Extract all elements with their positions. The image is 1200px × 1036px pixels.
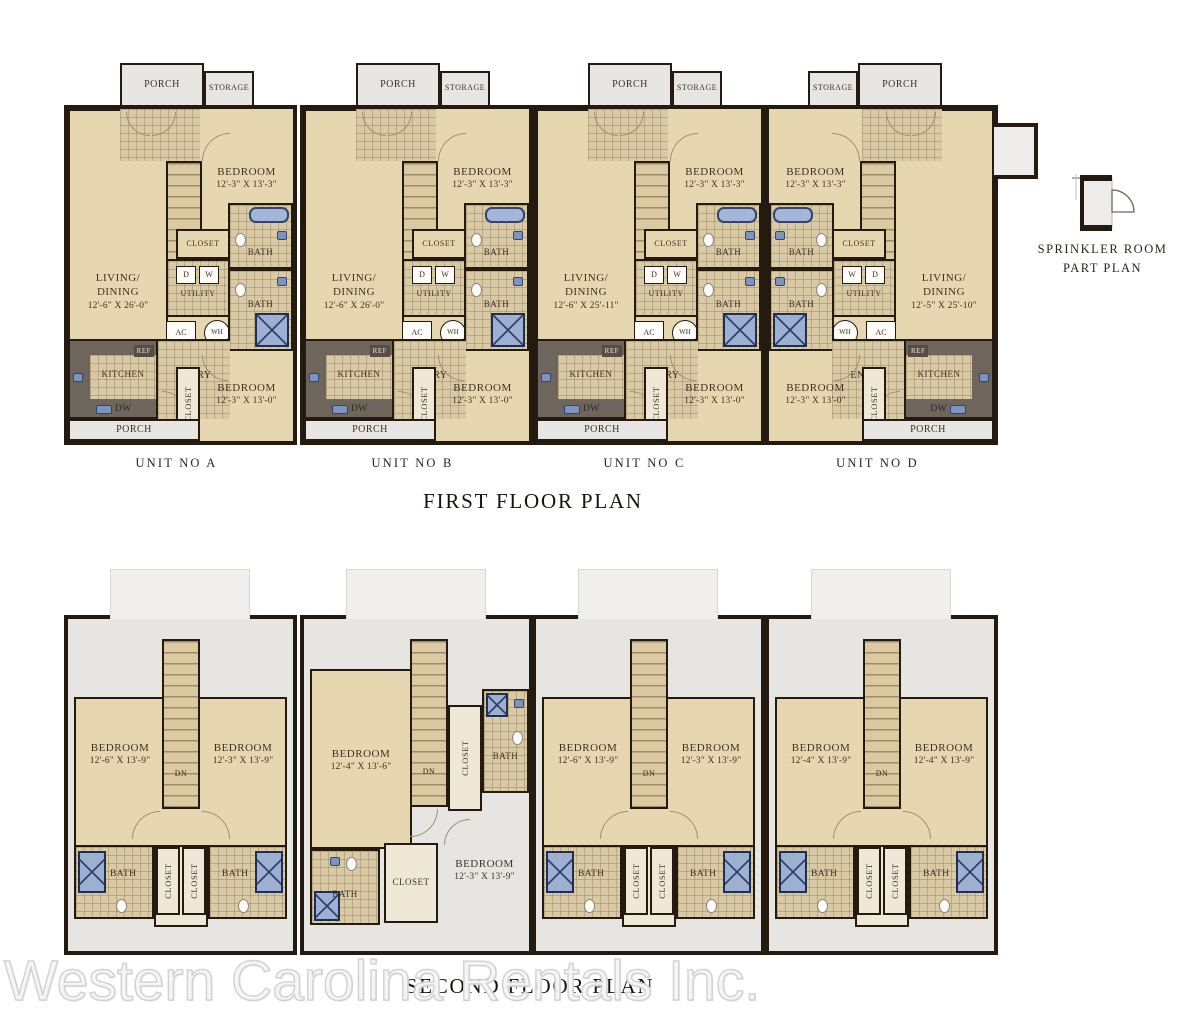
sink	[277, 277, 287, 286]
closet-left: CLOSET	[857, 847, 881, 915]
bathroom-1: BATH	[696, 203, 761, 269]
bedroom-label: BEDROOM	[436, 381, 529, 395]
dn-label: DN	[412, 767, 446, 777]
dryer-label: D	[872, 270, 878, 279]
roof-dormer	[346, 569, 486, 619]
bath-label: BATH	[923, 869, 949, 879]
closet-label: CLOSET	[183, 386, 193, 422]
stairs-down: DN	[410, 639, 448, 807]
porch-rear: PORCH	[68, 419, 200, 441]
sprinkler-room-icon	[1068, 170, 1140, 242]
bath-left: BATH	[775, 845, 855, 919]
sink	[745, 231, 755, 240]
washer-label: W	[848, 270, 856, 279]
door-arc	[410, 809, 438, 837]
bedroom-label: BEDROOM	[777, 741, 865, 755]
bedroom-label: BEDROOM	[440, 857, 529, 871]
toilet	[939, 899, 950, 913]
bedroom-dims: 12'-3" X 13'-3"	[436, 179, 529, 191]
living-dims: 12'-5" X 25'-10"	[896, 300, 992, 312]
washer-label: W	[441, 270, 449, 279]
first-floor-unit-c: PORCH STORAGE LIVING/DINING12'-6" X 25'-…	[532, 105, 765, 445]
roof-dormer	[578, 569, 718, 619]
shower	[723, 313, 757, 347]
dw-label: DW	[930, 404, 947, 414]
utility-room: W D UTILITY	[832, 259, 896, 317]
bathroom-1: BATH	[769, 203, 834, 269]
bedroom-label: BEDROOM	[200, 165, 293, 179]
bath-label: BATH	[771, 299, 832, 311]
wh-label: WH	[211, 328, 223, 336]
bath-label: BATH	[466, 247, 527, 259]
ac-label: AC	[411, 328, 422, 337]
washer-label: W	[205, 270, 213, 279]
porch-label: PORCH	[864, 423, 992, 436]
bathtub	[485, 207, 525, 223]
bath-left: BATH	[542, 845, 622, 919]
bath-label: BATH	[690, 869, 716, 879]
bedroom-dims: 12'-4" X 13'-9"	[899, 755, 989, 767]
closet-label: CLOSET	[869, 386, 879, 422]
living-label: LIVING/	[306, 271, 402, 285]
shower	[773, 313, 807, 347]
bedroom-label: BEDROOM	[899, 741, 989, 755]
living-label: LIVING/	[896, 271, 992, 285]
bedroom-label: BEDROOM	[769, 165, 862, 179]
shower	[779, 851, 807, 893]
bathroom-2: BATH	[464, 269, 529, 351]
stairs-down: DN	[630, 639, 668, 809]
toilet	[346, 857, 357, 871]
bath-label: BATH	[466, 299, 527, 311]
bathroom-1: BATH	[464, 203, 529, 269]
second-floor-unit-b: BEDROOM12'-4" X 13'-6" DN CLOSET BATH BA…	[300, 615, 533, 955]
kitchen-floor: KITCHEN	[906, 355, 972, 399]
unit-c-label: UNIT NO C	[532, 456, 757, 471]
floor-plan-sheet: PORCH STORAGE LIVING/DINING12'-6" X 26'-…	[0, 0, 1200, 1036]
refrigerator: REF	[908, 345, 928, 357]
dryer-box: D	[176, 266, 196, 284]
refrigerator: REF	[602, 345, 622, 357]
bath-right: BATH	[208, 845, 287, 919]
dryer-box: D	[865, 266, 885, 284]
kitchen: KITCHEN REF DW	[68, 339, 158, 419]
dishwasher	[332, 405, 348, 414]
utility-room: D W UTILITY	[166, 259, 230, 317]
porch: PORCH	[120, 63, 204, 107]
porch-label: PORCH	[70, 423, 198, 436]
dryer-label: D	[183, 270, 189, 279]
bath-left: BATH	[74, 845, 154, 919]
utility-label: UTILITY	[404, 289, 464, 299]
kitchen-floor: KITCHEN	[326, 355, 392, 399]
shower	[546, 851, 574, 893]
bathtub	[249, 207, 289, 223]
utility-label: UTILITY	[834, 289, 894, 299]
kitchen-floor: KITCHEN	[558, 355, 624, 399]
closet-label: CLOSET	[651, 386, 661, 422]
bathroom-2: BATH	[228, 269, 293, 351]
closet-right: CLOSET	[883, 847, 907, 915]
bedroom-label: BEDROOM	[668, 381, 761, 395]
sprinkler-caption-line2: PART PLAN	[1005, 259, 1200, 278]
bath-label: BATH	[230, 247, 291, 259]
second-floor-unit-a: BEDROOM12'-6" X 13'-9" BEDROOM12'-3" X 1…	[64, 615, 297, 955]
closet-label: CLOSET	[631, 863, 641, 899]
porch-rear: PORCH	[304, 419, 436, 441]
dishwasher	[564, 405, 580, 414]
porch-label: PORCH	[538, 423, 666, 436]
shower	[491, 313, 525, 347]
ac-label: AC	[643, 328, 654, 337]
sink	[775, 231, 785, 240]
roof-dormer	[811, 569, 951, 619]
living-dims: 12'-6" X 25'-11"	[538, 300, 634, 312]
living-label: LIVING/	[70, 271, 166, 285]
storage-room: STORAGE	[204, 71, 254, 107]
sink	[745, 277, 755, 286]
bedroom-dims: 12'-6" X 13'-9"	[76, 755, 164, 767]
kitchen-sink	[73, 373, 83, 382]
bath-label: BATH	[230, 299, 291, 311]
bedroom-dims: 12'-3" X 13'-0"	[200, 395, 293, 407]
toilet	[703, 233, 714, 247]
bath-top: BATH	[482, 689, 529, 793]
wh-label: WH	[447, 328, 459, 336]
closet: CLOSET	[832, 229, 886, 259]
toilet	[116, 899, 127, 913]
bathtub	[773, 207, 813, 223]
toilet	[471, 283, 482, 297]
closet-label: CLOSET	[414, 239, 464, 249]
porch-label: PORCH	[860, 78, 940, 91]
unit-a-label: UNIT NO A	[64, 456, 289, 471]
kitchen-sink	[979, 373, 989, 382]
sink	[513, 231, 523, 240]
storage-label: STORAGE	[206, 83, 252, 93]
utility-room: D W UTILITY	[402, 259, 466, 317]
toilet	[235, 283, 246, 297]
first-floor-unit-b: PORCH STORAGE LIVING/DINING12'-6" X 26'-…	[300, 105, 533, 445]
toilet	[706, 899, 717, 913]
dryer-label: D	[419, 270, 425, 279]
living-dims: 12'-6" X 26'-0"	[70, 300, 166, 312]
sink	[514, 699, 524, 708]
bedroom-label: BEDROOM	[198, 741, 288, 755]
dining-label: DINING	[896, 285, 992, 299]
storage-room: STORAGE	[672, 71, 722, 107]
bedroom-dims: 12'-3" X 13'-9"	[666, 755, 756, 767]
sprinkler-caption: SPRINKLER ROOM PART PLAN	[1005, 240, 1200, 279]
utility-room: D W UTILITY	[634, 259, 698, 317]
bathroom-2: BATH	[696, 269, 761, 351]
bedroom-dims: 12'-3" X 13'-0"	[769, 395, 862, 407]
bedroom-dims: 12'-3" X 13'-9"	[198, 755, 288, 767]
porch-label: PORCH	[358, 78, 438, 91]
porch-label: PORCH	[306, 423, 434, 436]
shower	[78, 851, 106, 893]
storage-label: STORAGE	[810, 83, 856, 93]
sprinkler-room-diagram	[1068, 170, 1140, 242]
shower	[486, 693, 508, 717]
kitchen-sink	[309, 373, 319, 382]
wh-label: WH	[679, 328, 691, 336]
kitchen-floor: KITCHEN	[90, 355, 156, 399]
utility-label: UTILITY	[636, 289, 696, 299]
toilet	[703, 283, 714, 297]
wh-label: WH	[839, 328, 851, 336]
bath-label: BATH	[578, 869, 604, 879]
dryer-box: D	[412, 266, 432, 284]
bath-label: BATH	[484, 751, 527, 763]
closet-label: CLOSET	[460, 740, 470, 776]
first-floor-unit-a: PORCH STORAGE LIVING/DINING12'-6" X 26'-…	[64, 105, 297, 445]
closet-label: CLOSET	[189, 863, 199, 899]
kitchen-label: KITCHEN	[906, 369, 972, 381]
bathtub	[717, 207, 757, 223]
bathroom-1: BATH	[228, 203, 293, 269]
shower	[255, 851, 283, 893]
closet-left: CLOSET	[624, 847, 648, 915]
sink	[513, 277, 523, 286]
watermark: Western Carolina Rentals Inc.	[4, 950, 760, 1013]
closet-left: CLOSET	[156, 847, 180, 915]
bedroom-label: BEDROOM	[312, 747, 410, 761]
ac-label: AC	[875, 328, 886, 337]
bedroom-dims: 12'-3" X 13'-3"	[769, 179, 862, 191]
toilet	[512, 731, 523, 745]
bath-label: BATH	[811, 869, 837, 879]
closet-middle: CLOSET	[384, 843, 438, 923]
sprinkler-caption-line1: SPRINKLER ROOM	[1005, 240, 1200, 259]
closet-label: CLOSET	[163, 863, 173, 899]
storage-room: STORAGE	[808, 71, 858, 107]
closet-label: CLOSET	[419, 386, 429, 422]
bedroom-label: BEDROOM	[666, 741, 756, 755]
bath-left: BATH	[310, 849, 380, 925]
closet-label: CLOSET	[834, 239, 884, 249]
bath-label: BATH	[771, 247, 832, 259]
closet-label: CLOSET	[657, 863, 667, 899]
bath-right: BATH	[676, 845, 755, 919]
kitchen: KITCHEN REF DW	[904, 339, 994, 419]
second-floor-unit-c: BEDROOM12'-6" X 13'-9" BEDROOM12'-3" X 1…	[532, 615, 765, 955]
toilet	[584, 899, 595, 913]
dryer-label: D	[651, 270, 657, 279]
dw-label: DW	[115, 404, 132, 414]
ac-label: AC	[175, 328, 186, 337]
kitchen: KITCHEN REF DW	[536, 339, 626, 419]
closet-top: CLOSET	[448, 705, 482, 811]
bath-label: BATH	[698, 247, 759, 259]
toilet	[235, 233, 246, 247]
second-floor-unit-d: BEDROOM12'-4" X 13'-9" BEDROOM12'-4" X 1…	[765, 615, 998, 955]
bedroom-label: BEDROOM	[76, 741, 164, 755]
bedroom-dims: 12'-3" X 13'-0"	[668, 395, 761, 407]
toilet	[471, 233, 482, 247]
closet-right: CLOSET	[182, 847, 206, 915]
kitchen-label: KITCHEN	[326, 369, 392, 381]
toilet	[817, 899, 828, 913]
bath-label: BATH	[110, 869, 136, 879]
porch-label: PORCH	[122, 78, 202, 91]
storage-label: STORAGE	[442, 83, 488, 93]
first-floor-unit-d: PORCH STORAGE LIVING/DINING12'-5" X 25'-…	[765, 105, 998, 445]
closet-label: CLOSET	[890, 863, 900, 899]
stairs-down: DN	[863, 639, 901, 809]
closet-label: CLOSET	[864, 863, 874, 899]
dishwasher	[950, 405, 966, 414]
dw-label: DW	[351, 404, 368, 414]
dishwasher	[96, 405, 112, 414]
dn-label: DN	[865, 769, 899, 779]
toilet	[816, 283, 827, 297]
washer-label: W	[673, 270, 681, 279]
dn-label: DN	[632, 769, 666, 779]
porch-rear: PORCH	[536, 419, 668, 441]
dining-label: DINING	[538, 285, 634, 299]
bedroom-dims: 12'-3" X 13'-0"	[436, 395, 529, 407]
shower	[723, 851, 751, 893]
bath-right: BATH	[909, 845, 988, 919]
bedroom-label: BEDROOM	[436, 165, 529, 179]
bedroom-dims: 12'-4" X 13'-6"	[312, 761, 410, 773]
bedroom-label: BEDROOM	[544, 741, 632, 755]
unit-d-label: UNIT NO D	[765, 456, 990, 471]
dining-label: DINING	[70, 285, 166, 299]
unit-b-label: UNIT NO B	[300, 456, 525, 471]
closet: CLOSET	[644, 229, 698, 259]
closet-right: CLOSET	[650, 847, 674, 915]
dining-label: DINING	[306, 285, 402, 299]
storage-label: STORAGE	[674, 83, 720, 93]
porch: PORCH	[588, 63, 672, 107]
dw-label: DW	[583, 404, 600, 414]
roof-dormer	[110, 569, 250, 619]
sink	[330, 857, 340, 866]
washer-box: W	[667, 266, 687, 284]
toilet	[238, 899, 249, 913]
kitchen-label: KITCHEN	[90, 369, 156, 381]
bath-label: BATH	[698, 299, 759, 311]
bedroom-dims: 12'-3" X 13'-3"	[668, 179, 761, 191]
washer-box: W	[435, 266, 455, 284]
stairs-down: DN	[162, 639, 200, 809]
refrigerator: REF	[134, 345, 154, 357]
bedroom-label: BEDROOM	[200, 381, 293, 395]
porch: PORCH	[356, 63, 440, 107]
storage-room: STORAGE	[440, 71, 490, 107]
bedroom-1: BEDROOM12'-4" X 13'-6"	[310, 669, 412, 849]
dn-label: DN	[164, 769, 198, 779]
sink	[277, 231, 287, 240]
first-floor-title: FIRST FLOOR PLAN	[333, 489, 733, 514]
utility-label: UTILITY	[168, 289, 228, 299]
shower	[255, 313, 289, 347]
bedroom-label: BEDROOM	[668, 165, 761, 179]
sink	[775, 277, 785, 286]
porch: PORCH	[858, 63, 942, 107]
washer-box: W	[199, 266, 219, 284]
washer-box: W	[842, 266, 862, 284]
porch-rear: PORCH	[862, 419, 994, 441]
bedroom-dims: 12'-3" X 13'-9"	[440, 871, 529, 883]
kitchen-label: KITCHEN	[558, 369, 624, 381]
bedroom-label: BEDROOM	[769, 381, 862, 395]
bath-label: BATH	[222, 869, 248, 879]
bedroom-dims: 12'-6" X 13'-9"	[544, 755, 632, 767]
closet: CLOSET	[176, 229, 230, 259]
closet-label: CLOSET	[386, 877, 436, 889]
bathroom-2: BATH	[769, 269, 834, 351]
kitchen: KITCHEN REF DW	[304, 339, 394, 419]
bath-label: BATH	[312, 889, 378, 901]
kitchen-sink	[541, 373, 551, 382]
porch-label: PORCH	[590, 78, 670, 91]
bedroom-dims: 12'-4" X 13'-9"	[777, 755, 865, 767]
toilet	[816, 233, 827, 247]
dryer-box: D	[644, 266, 664, 284]
shower	[956, 851, 984, 893]
closet-label: CLOSET	[178, 239, 228, 249]
closet-label: CLOSET	[646, 239, 696, 249]
living-dims: 12'-6" X 26'-0"	[306, 300, 402, 312]
living-label: LIVING/	[538, 271, 634, 285]
refrigerator: REF	[370, 345, 390, 357]
closet: CLOSET	[412, 229, 466, 259]
sprinkler-room-bumpout	[990, 123, 1038, 179]
bedroom-dims: 12'-3" X 13'-3"	[200, 179, 293, 191]
